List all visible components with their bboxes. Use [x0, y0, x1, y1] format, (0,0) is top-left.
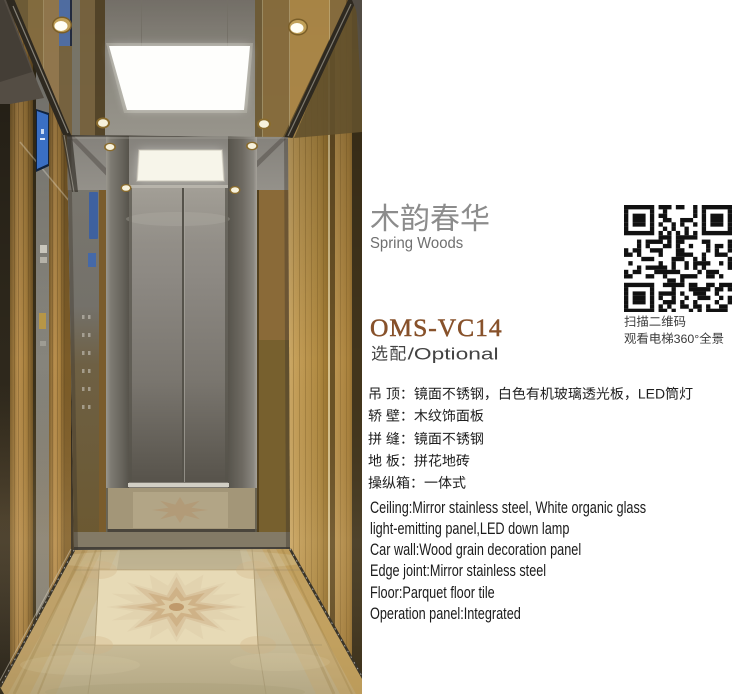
svg-text:360°: 360°: [674, 332, 700, 346]
svg-text:/Optional: /Optional: [408, 345, 499, 364]
svg-text:LED: LED: [638, 386, 665, 402]
